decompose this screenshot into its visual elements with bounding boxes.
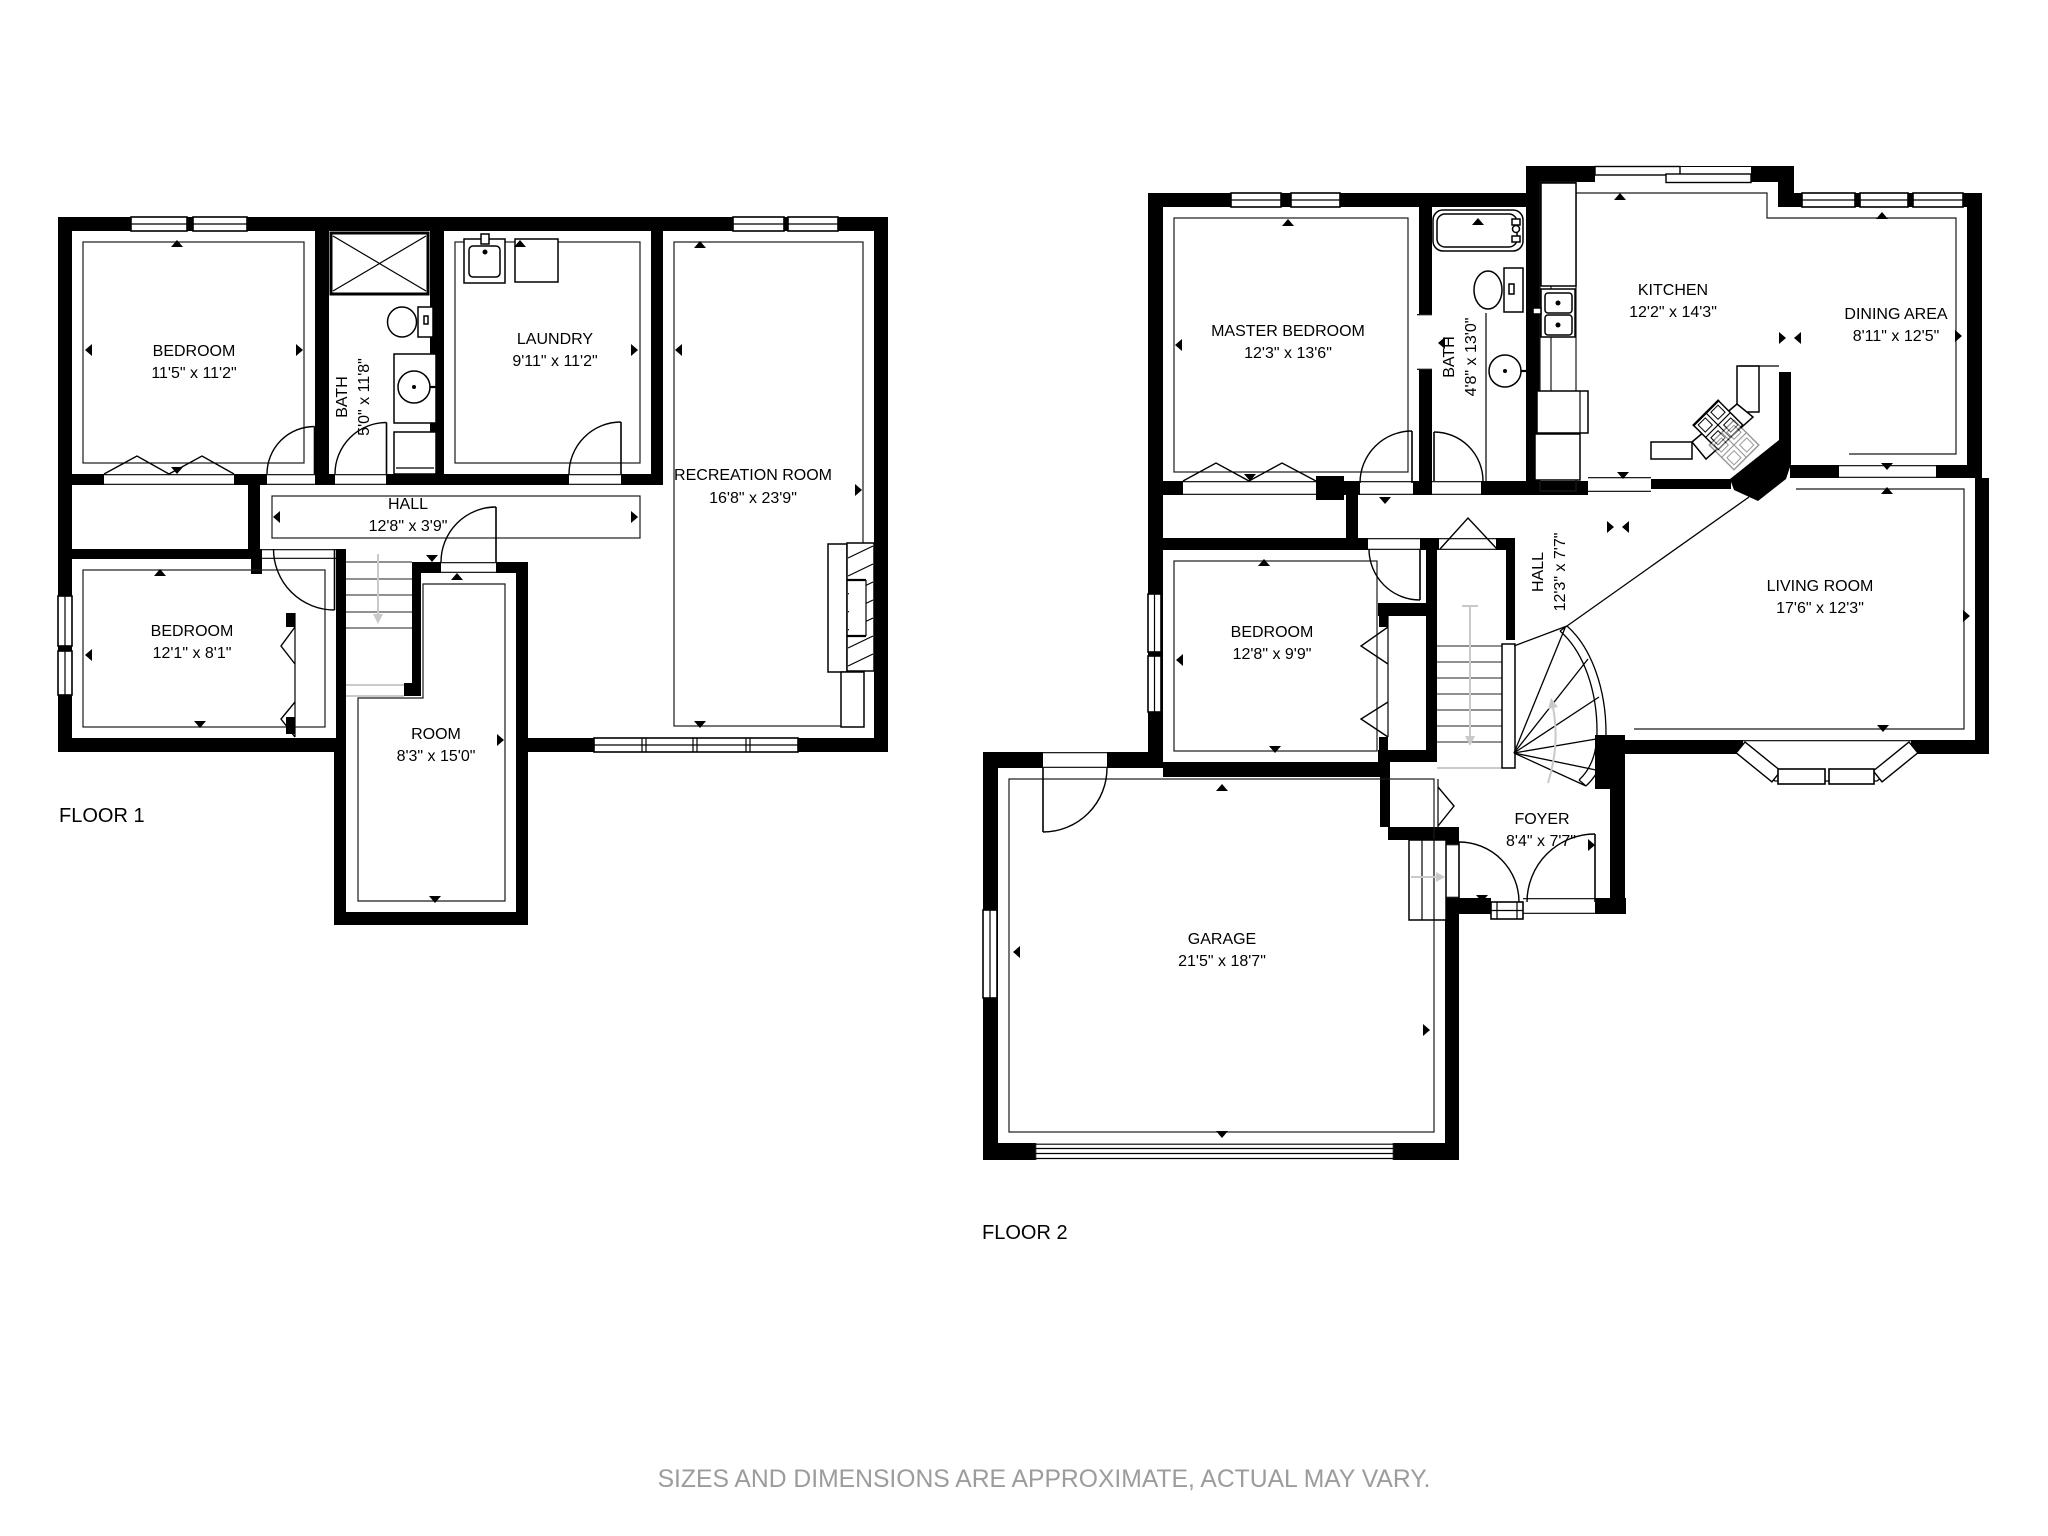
svg-text:8'4" x 7'7": 8'4" x 7'7" — [1506, 833, 1576, 850]
svg-text:12'8" x 9'9": 12'8" x 9'9" — [1233, 646, 1312, 663]
svg-text:BEDROOM: BEDROOM — [153, 343, 236, 360]
svg-text:BEDROOM: BEDROOM — [151, 623, 234, 640]
svg-text:ROOM: ROOM — [411, 726, 461, 743]
svg-text:KITCHEN: KITCHEN — [1638, 282, 1708, 299]
svg-text:BEDROOM: BEDROOM — [1231, 624, 1314, 641]
svg-text:5'0" x 11'8": 5'0" x 11'8" — [356, 358, 373, 436]
svg-text:16'8" x 23'9": 16'8" x 23'9" — [709, 490, 797, 507]
svg-text:12'3" x 7'7": 12'3" x 7'7" — [1552, 533, 1569, 612]
svg-text:GARAGE: GARAGE — [1188, 931, 1256, 948]
svg-text:FOYER: FOYER — [1514, 811, 1569, 828]
svg-text:21'5" x 18'7": 21'5" x 18'7" — [1178, 953, 1266, 970]
svg-text:HALL: HALL — [1530, 552, 1547, 592]
svg-text:9'11" x 11'2": 9'11" x 11'2" — [512, 353, 597, 370]
svg-text:11'5" x 11'2": 11'5" x 11'2" — [151, 365, 236, 382]
svg-text:DINING AREA: DINING AREA — [1844, 306, 1947, 323]
svg-text:BATH: BATH — [1441, 336, 1458, 377]
svg-text:8'3" x 15'0": 8'3" x 15'0" — [397, 748, 476, 765]
svg-text:LIVING ROOM: LIVING ROOM — [1767, 578, 1874, 595]
svg-text:17'6" x 12'3": 17'6" x 12'3" — [1776, 600, 1864, 617]
svg-text:HALL: HALL — [388, 496, 428, 513]
svg-text:FLOOR 2: FLOOR 2 — [982, 1222, 1068, 1244]
svg-text:8'11" x 12'5": 8'11" x 12'5" — [1853, 328, 1940, 345]
svg-text:12'2" x 14'3": 12'2" x 14'3" — [1629, 304, 1717, 321]
svg-text:FLOOR 1: FLOOR 1 — [59, 805, 145, 827]
svg-text:BATH: BATH — [334, 376, 351, 417]
svg-text:12'1" x 8'1": 12'1" x 8'1" — [153, 645, 232, 662]
svg-text:SIZES AND DIMENSIONS ARE APPRO: SIZES AND DIMENSIONS ARE APPROXIMATE, AC… — [658, 1466, 1431, 1493]
svg-text:4'8" x 13'0": 4'8" x 13'0" — [1463, 318, 1480, 397]
svg-text:12'3" x 13'6": 12'3" x 13'6" — [1244, 345, 1332, 362]
svg-text:MASTER BEDROOM: MASTER BEDROOM — [1211, 323, 1365, 340]
svg-text:12'8" x 3'9": 12'8" x 3'9" — [369, 518, 448, 535]
svg-text:LAUNDRY: LAUNDRY — [517, 331, 594, 348]
svg-text:RECREATION ROOM: RECREATION ROOM — [674, 467, 832, 484]
